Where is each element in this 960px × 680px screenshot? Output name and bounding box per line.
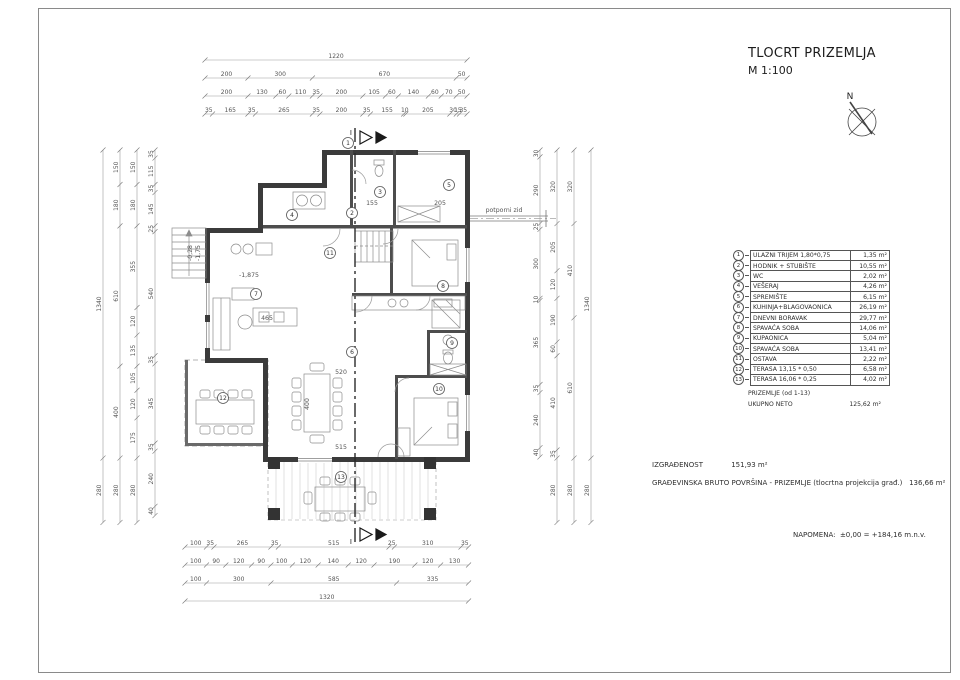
dim-value: 35 — [312, 107, 320, 114]
dim-value: 120 — [233, 558, 245, 565]
dim-value: 120 — [130, 398, 137, 410]
dim-value: 670 — [379, 71, 391, 78]
room-label: 11 — [325, 248, 336, 259]
dim-value: 200 — [221, 89, 233, 96]
kitchen-island-icon — [253, 308, 297, 326]
dim-value: 1340 — [584, 296, 591, 311]
svg-text:2: 2 — [350, 210, 354, 217]
leader-dash — [745, 265, 749, 266]
dim-value: 145 — [148, 203, 155, 215]
dim-value: 30 — [533, 149, 540, 157]
section-marker-bottom — [360, 528, 386, 541]
dim-value: 280 — [584, 484, 591, 496]
room-number-badge: 8 — [733, 322, 744, 333]
svg-text:9: 9 — [450, 340, 454, 347]
leader-dash — [745, 379, 749, 380]
bed2-icon — [398, 398, 458, 456]
legend-row: 11OSTAVA2,22 m² — [733, 354, 890, 364]
section-marker-top — [360, 131, 386, 144]
room-label: 10 — [434, 384, 445, 395]
dim-value: 35 — [206, 540, 214, 547]
dim-value: 100 — [190, 540, 202, 547]
dim-chain: 150180355120135105120175280 — [130, 148, 140, 525]
legend-row: 1ULAZNI TRIJEM 1,80*0,751,35 m² — [733, 250, 890, 260]
room-number-badge: 5 — [733, 291, 744, 302]
dim-value: 280 — [113, 484, 120, 496]
room-label: 4 — [287, 210, 298, 221]
dim-value: 50 — [458, 71, 466, 78]
dim-value: 35 — [363, 107, 371, 114]
leader-dash — [745, 348, 749, 349]
dim-value: 90 — [257, 558, 265, 565]
annotation: 515 — [335, 444, 347, 451]
dim-value: 140 — [408, 89, 420, 96]
kitchen-counter-icon — [352, 296, 465, 310]
dim-value: 190 — [389, 558, 401, 565]
closet-icon — [398, 206, 440, 222]
legend-row: 8SPAVAĆA SOBA14,06 m² — [733, 323, 890, 333]
dim-value: 25 — [388, 540, 396, 547]
dim-value: 35 — [248, 107, 256, 114]
dim-value: 175 — [130, 432, 137, 444]
dimension-chains: 1220200300670502001306011035200105601406… — [96, 53, 594, 604]
dim-value: 35 — [550, 450, 557, 458]
room-number-badge: 7 — [733, 312, 744, 323]
dim-value: 130 — [449, 558, 461, 565]
leader-dash — [745, 275, 749, 276]
builtup-value: 151,93 m² — [731, 461, 767, 469]
dim-chain: 1009012090100120140120190120130 — [183, 558, 472, 568]
leader-dash — [745, 296, 749, 297]
dim-chain: 1340280 — [96, 148, 106, 525]
dim-value: 35 — [312, 89, 320, 96]
svg-text:11: 11 — [326, 250, 334, 257]
leader-dash — [745, 338, 749, 339]
dim-value: 200 — [221, 71, 233, 78]
columns — [268, 457, 436, 520]
dim-value: 280 — [567, 484, 574, 496]
dim-value: 540 — [148, 288, 155, 300]
dim-value: 100 — [276, 558, 288, 565]
dim-value: 120 — [550, 279, 557, 291]
dim-value: 35 — [148, 443, 155, 451]
dim-chain: 1340280 — [584, 148, 594, 525]
dim-chain: 10035265355152531035 — [183, 540, 472, 550]
dim-value: 585 — [328, 576, 340, 583]
dim-value: 150 — [113, 161, 120, 173]
dim-value: 105 — [130, 372, 137, 384]
dim-chain: 320410610280 — [567, 148, 577, 525]
dim-chain: 3029025300103653524040 — [533, 148, 543, 460]
dim-value: 300 — [274, 71, 286, 78]
dim-value: 50 — [458, 89, 466, 96]
dim-value: 115 — [148, 165, 155, 177]
room-label: 8 — [438, 281, 449, 292]
room-label: 2 — [347, 208, 358, 219]
dim-value: 280 — [550, 484, 557, 496]
dim-value: 35 — [461, 540, 469, 547]
sofa-icon — [213, 288, 254, 350]
dim-value: 155 — [381, 107, 393, 114]
dim-value: 240 — [148, 473, 155, 485]
dim-value: 1340 — [96, 296, 103, 311]
leader-dash — [745, 327, 749, 328]
dim-value: 25 — [533, 222, 540, 230]
annotation: 465 — [261, 315, 273, 322]
dim-value: 90 — [212, 558, 220, 565]
legend-row: 9KUPAONICA5,04 m² — [733, 333, 890, 343]
leader-dash — [745, 286, 749, 287]
room-number-badge: 13 — [733, 374, 744, 385]
room-label: 6 — [347, 347, 358, 358]
dim-value: 120 — [130, 315, 137, 327]
legend-row: 5SPREMIŠTE6,15 m² — [733, 292, 890, 302]
dim-value: 25 — [148, 225, 155, 233]
dim-value: 120 — [355, 558, 367, 565]
dim-value: 515 — [328, 540, 340, 547]
dim-value: 120 — [300, 558, 312, 565]
room-label: 13 — [336, 472, 347, 483]
dim-chain: 150180610400280 — [113, 148, 123, 525]
dim-value: 10 — [401, 107, 409, 114]
legend-row: 6KUHINJA+BLAGOVAONICA26,19 m² — [733, 302, 890, 312]
annotation: 205 — [434, 200, 446, 207]
leader-dash — [745, 307, 749, 308]
dim-value: 150 — [130, 161, 137, 173]
dim-value: 320 — [567, 181, 574, 193]
svg-text:5: 5 — [447, 182, 451, 189]
svg-text:6: 6 — [350, 349, 354, 356]
legend-row: 10SPAVAĆA SOBA13,41 m² — [733, 344, 890, 354]
dim-value: 200 — [336, 89, 348, 96]
room-number-badge: 6 — [733, 302, 744, 313]
dim-value: 35 — [459, 107, 467, 114]
svg-text:8: 8 — [441, 283, 445, 290]
dim-value: 35 — [533, 385, 540, 393]
dim-value: 110 — [295, 89, 307, 96]
room-number-badge: 2 — [733, 260, 744, 271]
dim-value: 200 — [336, 107, 348, 114]
room-label: 3 — [375, 187, 386, 198]
svg-text:1: 1 — [346, 140, 350, 147]
leader-dash — [745, 317, 749, 318]
dim-value: 165 — [225, 107, 237, 114]
room-label: 1 — [343, 138, 354, 149]
dim-chain: 20030067050 — [203, 71, 470, 81]
note-line: NAPOMENA: ±0,00 = +184,16 m.n.v. — [793, 531, 926, 539]
room-number-badge: 1 — [733, 250, 744, 261]
interior-stair-icon — [355, 231, 393, 262]
room-number-badge: 12 — [733, 364, 744, 375]
dim-value: 280 — [96, 484, 103, 496]
dim-chain: 3202051201906041035280 — [550, 148, 560, 525]
dim-value: 60 — [550, 345, 557, 353]
svg-text:13: 13 — [337, 474, 345, 481]
dim-value: 280 — [130, 484, 137, 496]
note-value: ±0,00 = +184,16 m.n.v. — [840, 531, 926, 539]
dim-value: 140 — [327, 558, 339, 565]
annotation: potporni zid — [486, 207, 523, 214]
room-area: 4,02 m² — [851, 374, 890, 386]
dim-value: 120 — [422, 558, 434, 565]
leader-dash — [745, 359, 749, 360]
dim-chain: 1320 — [183, 594, 472, 604]
shower-icon — [432, 300, 460, 328]
dim-value: 180 — [130, 199, 137, 211]
svg-text:4: 4 — [290, 212, 294, 219]
annotation: -1,75 — [195, 245, 202, 261]
exterior-walls — [205, 150, 470, 462]
dim-value: 205 — [422, 107, 434, 114]
section-label-bottom: I — [350, 538, 352, 546]
dim-value: 10 — [533, 295, 540, 303]
svg-text:7: 7 — [254, 291, 258, 298]
room-legend-table: 1ULAZNI TRIJEM 1,80*0,751,35 m²2HODNIK +… — [733, 250, 890, 410]
room-label: 9 — [447, 338, 458, 349]
legend-row: 13TERASA 16,06 * 0,254,02 m² — [733, 375, 890, 385]
legend-row: 7DNEVNI BORAVAK29,77 m² — [733, 312, 890, 322]
dim-value: 35 — [148, 150, 155, 158]
room-number-badge: 4 — [733, 281, 744, 292]
drawing-sheet: TLOCRT PRIZEMLJA M 1:100 N — [0, 0, 960, 680]
dim-value: 40 — [148, 507, 155, 515]
annotation: 155 — [366, 200, 378, 207]
dim-chain: 351153514525540353453524040 — [148, 148, 158, 519]
dim-value: 60 — [431, 89, 439, 96]
builtup-line: IZGRAĐENOST 151,93 m² — [652, 461, 768, 469]
dim-value: 1320 — [319, 594, 334, 601]
dim-value: 300 — [533, 258, 540, 270]
dim-value: 60 — [279, 89, 287, 96]
dim-value: 410 — [550, 397, 557, 409]
legend-row: 4VEŠERAJ4,26 m² — [733, 281, 890, 291]
dim-value: 35 — [271, 540, 279, 547]
dim-value: 355 — [130, 261, 137, 273]
closet2-icon — [430, 364, 466, 375]
dim-value: 35 — [148, 185, 155, 193]
dim-value: 335 — [427, 576, 439, 583]
north-compass-icon: N — [847, 92, 876, 136]
bed-icon — [412, 240, 458, 286]
dim-value: 205 — [550, 241, 557, 253]
dim-value: 1220 — [328, 53, 343, 60]
note-label: NAPOMENA: — [793, 531, 835, 539]
dim-value: 290 — [533, 184, 540, 196]
room-label: 7 — [251, 289, 262, 300]
legend-total-value: 125,62 m² — [845, 401, 881, 408]
dim-chain: 200130601103520010560140607050 — [203, 89, 470, 99]
svg-text:10: 10 — [435, 386, 443, 393]
dim-value: 310 — [422, 540, 434, 547]
dim-chain: 3516535265352003515510205301535 — [203, 107, 470, 117]
legend-total-label: UKUPNO NETO — [748, 401, 845, 408]
furniture — [172, 160, 466, 521]
svg-text:12: 12 — [219, 395, 227, 402]
annotation: -0,28 — [187, 245, 194, 261]
dim-value: 300 — [233, 576, 245, 583]
legend-row: 2HODNIK + STUBIŠTE10,55 m² — [733, 260, 890, 270]
legend-footer-range: PRIZEMLJE (od 1-13) — [748, 390, 845, 397]
north-label: N — [847, 92, 854, 102]
dim-value: 60 — [388, 89, 396, 96]
dim-value: 345 — [148, 398, 155, 410]
gbp-line: GRAĐEVINSKA BRUTO POVRŠINA - PRIZEMLJE (… — [652, 479, 945, 487]
dim-value: 180 — [113, 199, 120, 211]
room-number-badge: 9 — [733, 333, 744, 344]
dim-value: 35 — [205, 107, 213, 114]
dim-value: 320 — [550, 181, 557, 193]
gbp-label: GRAĐEVINSKA BRUTO POVRŠINA - PRIZEMLJE (… — [652, 479, 902, 487]
svg-text:3: 3 — [378, 189, 382, 196]
legend-row: 3WC2,02 m² — [733, 271, 890, 281]
utility-sinks-icon — [231, 243, 272, 255]
dim-value: 70 — [445, 89, 453, 96]
leader-dash — [745, 369, 749, 370]
leader-dash — [745, 255, 749, 256]
room-label: 5 — [444, 180, 455, 191]
gbp-value: 136,66 m² — [909, 479, 945, 487]
washer-dryer-icons — [293, 192, 325, 209]
room-number-badge: 11 — [733, 354, 744, 365]
annotation: 400 — [304, 398, 311, 410]
dim-value: 410 — [567, 265, 574, 277]
dim-value: 35 — [148, 356, 155, 364]
room-label: 12 — [218, 393, 229, 404]
annotation: -1,875 — [239, 272, 259, 279]
dim-value: 365 — [533, 337, 540, 349]
dim-value: 610 — [567, 382, 574, 394]
room-name: TERASA 16,06 * 0,25 — [750, 374, 851, 386]
dim-value: 130 — [256, 89, 268, 96]
dim-value: 265 — [278, 107, 290, 114]
dim-value: 240 — [533, 414, 540, 426]
section-label-top: I — [350, 129, 352, 137]
room-number-badge: 10 — [733, 343, 744, 354]
annotation: 520 — [335, 369, 347, 376]
room-number-badge: 3 — [733, 270, 744, 281]
dim-value: 610 — [113, 290, 120, 302]
builtup-label: IZGRAĐENOST — [652, 461, 703, 469]
dim-value: 100 — [190, 558, 202, 565]
terrace-12 — [185, 360, 268, 446]
dim-chain: 1220 — [203, 53, 470, 63]
dim-value: 40 — [533, 448, 540, 456]
dim-value: 190 — [550, 314, 557, 326]
toilet-icon — [374, 160, 384, 177]
dim-value: 135 — [130, 345, 137, 357]
dim-value: 100 — [190, 576, 202, 583]
dim-value: 105 — [368, 89, 380, 96]
dim-value: 265 — [237, 540, 249, 547]
dim-chain: 100300585335 — [183, 576, 472, 586]
dim-value: 400 — [113, 406, 120, 418]
